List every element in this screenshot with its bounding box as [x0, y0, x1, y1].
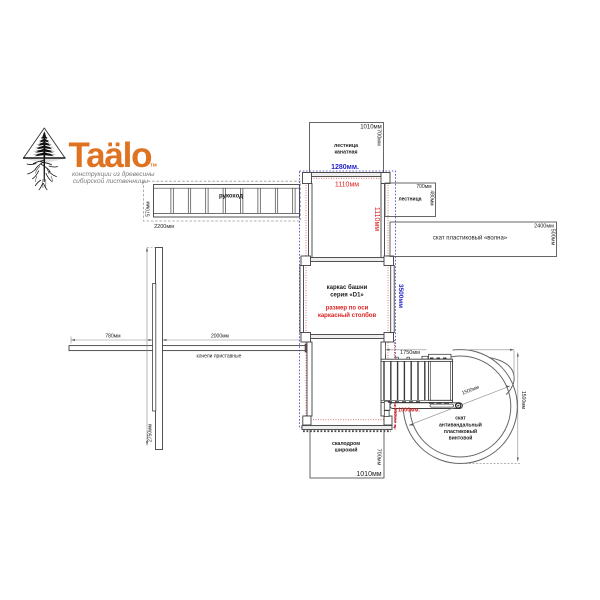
- svg-text:2200мм: 2200мм: [154, 224, 174, 230]
- svg-text:сибирской лиственницы: сибирской лиственницы: [73, 177, 148, 185]
- svg-text:3500мм: 3500мм: [397, 284, 404, 308]
- svg-text:канатная: канатная: [334, 149, 357, 155]
- svg-text:2750мм: 2750мм: [148, 423, 154, 442]
- svg-text:каркас башни: каркас башни: [327, 284, 368, 291]
- svg-text:1110мм: 1110мм: [373, 207, 380, 231]
- svg-text:1500мм: 1500мм: [520, 391, 526, 410]
- svg-text:размер по оси: размер по оси: [326, 306, 369, 312]
- svg-text:качели приставные: качели приставные: [197, 354, 242, 360]
- svg-text:1010мм: 1010мм: [356, 471, 381, 478]
- svg-text:каркасный столбов: каркасный столбов: [318, 312, 377, 319]
- svg-text:лестница: лестница: [334, 143, 358, 149]
- svg-text:тм: тм: [150, 163, 157, 169]
- svg-text:700мм: 700мм: [376, 129, 382, 146]
- svg-text:700мм: 700мм: [416, 184, 432, 190]
- svg-text:пластиковый: пластиковый: [444, 428, 477, 435]
- svg-text:антивандальный: антивандальный: [439, 422, 482, 429]
- svg-text:лестница: лестница: [398, 197, 421, 203]
- svg-text:широкий: широкий: [335, 447, 358, 454]
- svg-text:1750мм: 1750мм: [400, 350, 420, 356]
- svg-text:570мм: 570мм: [146, 201, 152, 217]
- svg-text:950мм: 950мм: [393, 408, 398, 423]
- svg-text:1000мм.: 1000мм.: [398, 408, 420, 414]
- svg-text:1110мм: 1110мм: [335, 182, 359, 189]
- svg-text:780мм: 780мм: [105, 334, 121, 340]
- svg-text:серия «D1»: серия «D1»: [330, 293, 364, 299]
- svg-text:рукоход: рукоход: [219, 194, 243, 200]
- svg-text:скалодром: скалодром: [332, 441, 360, 447]
- svg-text:700мм: 700мм: [376, 449, 382, 466]
- svg-text:скат: скат: [455, 416, 466, 422]
- svg-text:2000мм: 2000мм: [211, 334, 230, 340]
- svg-text:скат пластиковый «волна»: скат пластиковый «волна»: [433, 235, 508, 242]
- svg-text:винтовой: винтовой: [449, 435, 473, 442]
- svg-text:500мм: 500мм: [550, 229, 556, 246]
- svg-text:480мм: 480мм: [429, 190, 435, 206]
- svg-text:1280мм.: 1280мм.: [331, 164, 359, 171]
- svg-text:Taälo: Taälo: [69, 136, 153, 175]
